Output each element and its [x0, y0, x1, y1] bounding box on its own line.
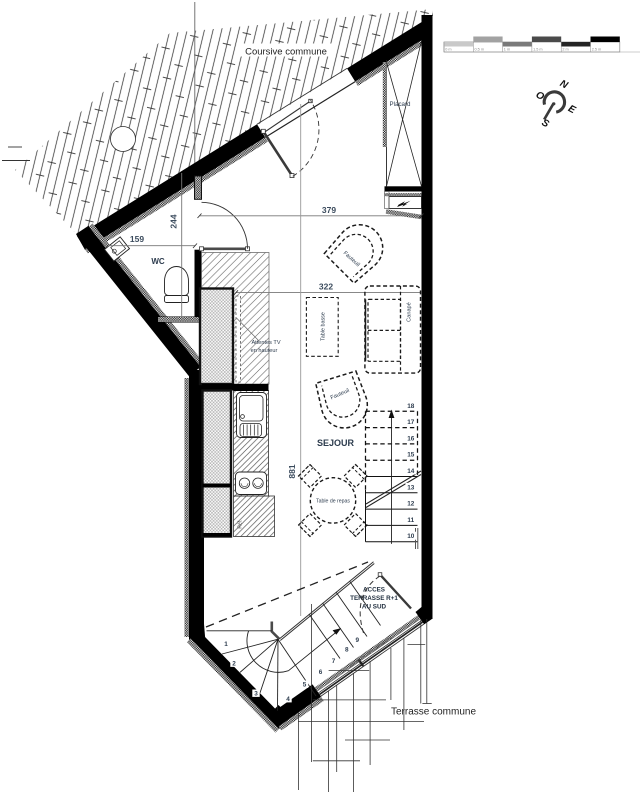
svg-text:159: 159 [130, 234, 144, 244]
svg-text:2.5 m: 2.5 m [592, 48, 602, 52]
svg-text:8: 8 [345, 647, 349, 654]
svg-text:2: 2 [232, 661, 236, 668]
svg-text:Table basse: Table basse [321, 312, 327, 341]
svg-text:0 m: 0 m [445, 48, 451, 52]
svg-text:1 m: 1 m [504, 48, 510, 52]
svg-text:AU SUD: AU SUD [362, 604, 387, 611]
svg-text:Coursive commune: Coursive commune [245, 47, 327, 58]
svg-text:SEJOUR: SEJOUR [317, 438, 355, 448]
svg-text:244: 244 [169, 214, 179, 228]
svg-text:3: 3 [254, 691, 258, 698]
svg-text:en hauteur: en hauteur [251, 348, 278, 354]
svg-text:7: 7 [332, 658, 336, 665]
svg-text:881: 881 [287, 464, 297, 478]
svg-text:4: 4 [286, 696, 290, 703]
svg-text:11: 11 [407, 517, 414, 524]
svg-text:6: 6 [319, 669, 323, 676]
svg-text:1: 1 [224, 641, 228, 648]
svg-text:Réf.: Réf. [238, 519, 244, 528]
svg-text:1.5 m: 1.5 m [533, 48, 543, 52]
svg-text:379: 379 [322, 205, 336, 215]
svg-text:9: 9 [356, 637, 360, 644]
svg-text:Table de repas: Table de repas [316, 499, 350, 505]
svg-text:14: 14 [407, 468, 415, 475]
svg-text:Attentes TV: Attentes TV [251, 340, 280, 346]
svg-text:TERRASSE R+1: TERRASSE R+1 [350, 595, 398, 602]
svg-text:2 m: 2 m [562, 48, 568, 52]
svg-text:10: 10 [407, 533, 415, 540]
svg-text:13: 13 [407, 484, 415, 491]
svg-text:12: 12 [407, 501, 415, 508]
svg-text:16: 16 [407, 435, 415, 442]
svg-text:18: 18 [407, 403, 415, 410]
svg-text:Placard: Placard [390, 101, 412, 108]
svg-text:5: 5 [303, 682, 307, 689]
svg-text:322: 322 [319, 282, 333, 292]
svg-text:WC: WC [151, 257, 165, 266]
svg-text:Canapé: Canapé [407, 302, 413, 322]
svg-text:0.5 m: 0.5 m [475, 48, 485, 52]
svg-text:15: 15 [407, 452, 415, 459]
svg-text:17: 17 [407, 419, 415, 426]
